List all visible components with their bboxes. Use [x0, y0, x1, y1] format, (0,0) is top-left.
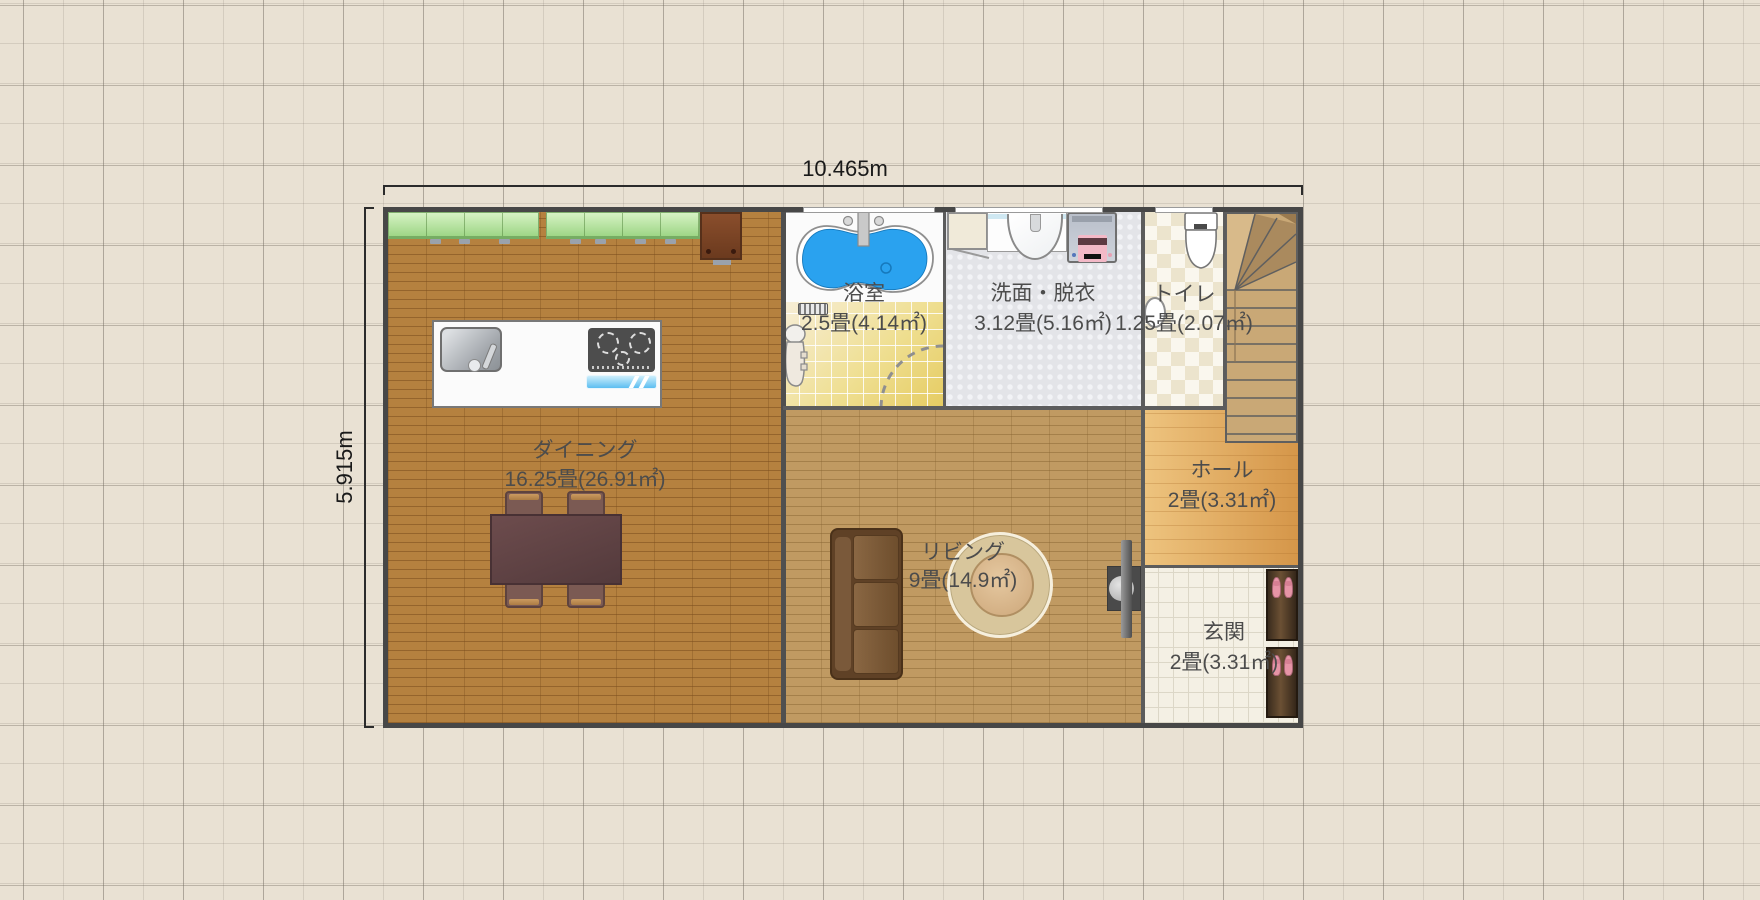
room-label-bathroom: 浴室: [843, 283, 885, 305]
washer-button: [1072, 253, 1076, 257]
cabinet-handle: [665, 239, 676, 244]
tub-faucet-icon: [858, 212, 869, 246]
wall-washroom-toilet: [1141, 212, 1145, 410]
washer-lid: [1072, 216, 1112, 222]
burner-icon: [597, 332, 619, 354]
living-hall-door[interactable]: [1121, 540, 1132, 638]
wall-dining-living: [781, 212, 786, 723]
toilet-window[interactable]: [1155, 207, 1213, 213]
room-area-bathroom: 2.5畳(4.14㎡): [801, 313, 927, 335]
washer-button: [1108, 253, 1112, 257]
kitchen-wall-cabinet-left[interactable]: [388, 212, 539, 239]
cabinet-handle: [459, 239, 470, 244]
sofa-backrest: [835, 537, 851, 671]
dining-table[interactable]: [490, 514, 622, 585]
room-label-entrance: 玄関: [1203, 622, 1245, 644]
washroom-cabinet[interactable]: [947, 212, 988, 250]
dining-chair[interactable]: [505, 581, 543, 608]
vanity-faucet-icon: [1030, 214, 1041, 232]
tub-knob-icon: [875, 217, 884, 226]
room-label-washroom: 洗面・脱衣: [991, 283, 1096, 305]
floorplan-canvas[interactable]: 10.465m 5.915m: [0, 0, 1760, 900]
sofa-cushion: [853, 582, 899, 627]
sofa[interactable]: [830, 528, 903, 680]
room-area-washroom: 3.12畳(5.16㎡): [974, 313, 1112, 335]
refrigerator-handle: [713, 260, 731, 265]
washroom-window[interactable]: [955, 207, 1103, 213]
stove-glass-guard: [586, 375, 657, 389]
dining-chair[interactable]: [567, 581, 605, 608]
room-area-entrance: 2畳(3.31㎡): [1170, 652, 1279, 674]
washing-machine[interactable]: [1067, 212, 1117, 263]
burner-icon: [615, 351, 630, 366]
width-dimension-line: [383, 185, 1303, 187]
room-label-living: リビング: [921, 542, 1005, 564]
room-area-dining: 16.25畳(26.91㎡): [504, 469, 665, 491]
wall-hall-entrance: [1143, 565, 1298, 568]
cabinet-handle: [570, 239, 581, 244]
room-label-dining: ダイニング: [533, 440, 638, 462]
washer-panel: [1078, 235, 1107, 262]
cabinet-handle: [430, 239, 441, 244]
cabinet-handle: [635, 239, 646, 244]
height-dimension-tick-top: [364, 207, 374, 209]
fridge-hinge: [731, 249, 736, 254]
wall-wetrooms-south: [783, 406, 1226, 410]
gas-stove[interactable]: [588, 328, 655, 372]
width-dimension-tick-left: [383, 185, 385, 195]
width-dimension-tick-right: [1301, 185, 1303, 195]
height-dimension-label: 5.915m: [332, 430, 358, 503]
bath-door-swing: [881, 346, 943, 408]
wall-toilet-stairs: [1223, 212, 1226, 410]
room-label-hall: ホール: [1191, 460, 1254, 482]
room-area-hall: 2畳(3.31㎡): [1168, 490, 1277, 512]
kitchen-wall-cabinet-right[interactable]: [546, 212, 700, 239]
cabinet-handle: [499, 239, 510, 244]
height-dimension-line: [364, 207, 366, 728]
burner-icon: [629, 332, 651, 354]
bathroom-window[interactable]: [803, 207, 935, 213]
sofa-cushion: [853, 629, 899, 674]
sofa-cushion: [853, 535, 899, 580]
cabinet-handle: [595, 239, 606, 244]
toilet-fixture[interactable]: [1184, 212, 1218, 270]
room-area-toilet: 1.25畳(2.07㎡): [1115, 313, 1253, 335]
tub-knob-icon: [844, 217, 853, 226]
kitchen-sink[interactable]: [440, 327, 502, 372]
room-label-toilet: トイレ: [1153, 284, 1216, 306]
kitchen-island[interactable]: [432, 320, 662, 408]
floorplan[interactable]: ダイニング 16.25畳(26.91㎡) 浴室 2.5畳(4.14㎡) 洗面・脱…: [383, 207, 1303, 728]
fridge-hinge: [706, 249, 711, 254]
wall-bath-washroom: [943, 212, 946, 410]
width-dimension-label: 10.465m: [802, 156, 888, 182]
faucet-lever-icon: [481, 343, 498, 371]
stove-controls: [592, 366, 651, 369]
height-dimension-tick-bottom: [364, 726, 374, 728]
room-area-living: 9畳(14.9㎡): [909, 570, 1018, 592]
slippers[interactable]: [1272, 577, 1293, 599]
sink-drain-icon: [468, 359, 481, 372]
refrigerator[interactable]: [700, 212, 742, 260]
